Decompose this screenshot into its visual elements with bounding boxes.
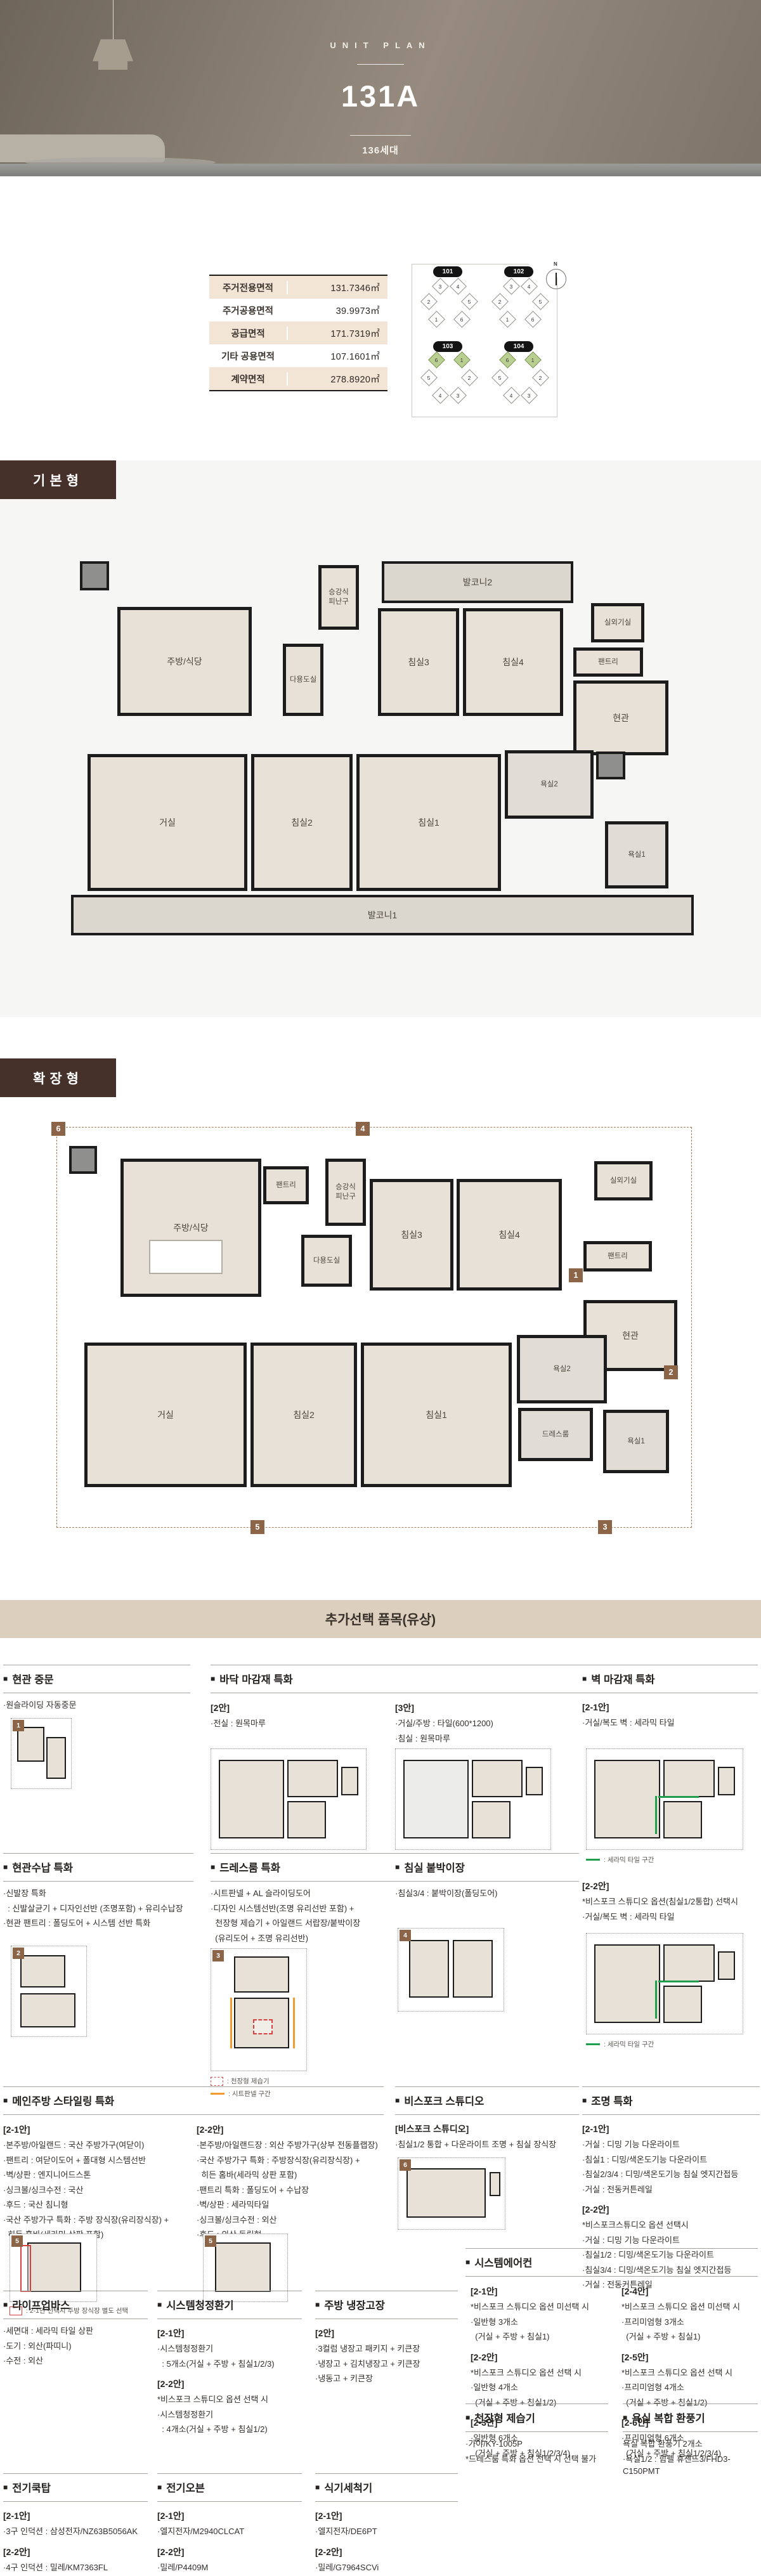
- option-lines: [2안]·3컬럼 냉장고 패키지 + 키큰장·냉장고 + 김치냉장고 + 키큰장…: [315, 2327, 458, 2385]
- building-label: 104: [504, 341, 533, 352]
- option-card-cooktop: ■전기쿡탑 [2-1안]·3구 인덕션 : 삼성전자/NZ63B5056AK[2…: [3, 2473, 148, 2576]
- thumb-block: [490, 2172, 500, 2196]
- card-title-row: ■조명 특화: [582, 2086, 760, 2115]
- option-line: ·디자인 시스템선반(조명 유리선반 포함) +: [211, 1903, 398, 1915]
- option-line: *비스포크 스튜디오 옵션(침실1/2통합) 선택시: [582, 1896, 758, 1908]
- card-title: 전기쿡탑: [12, 2480, 51, 2495]
- card-title: 벽 마감재 특화: [591, 1671, 654, 1686]
- card-title: 천장형 제습기: [474, 2410, 535, 2425]
- option-line: ·시트판넬 + AL 슬라이딩도어: [211, 1887, 398, 1900]
- square-bullet-icon: ■: [211, 1674, 215, 1683]
- option-lines: [2-1안]·거실/복도 벽 : 세라믹 타일: [582, 1701, 758, 1729]
- card-title: 조명 특화: [591, 2093, 632, 2108]
- area-label: 기타 공용면적: [209, 349, 288, 363]
- thumb-block: [594, 1760, 660, 1838]
- unit-type-title: 131A: [0, 79, 761, 114]
- thumb-block: [409, 1940, 449, 1998]
- square-bullet-icon: ■: [3, 1674, 8, 1683]
- unit-diamond-highlighted: 6: [499, 351, 516, 368]
- option-line: ·냉동고 + 키큰장: [315, 2372, 458, 2385]
- legend: : 천장형 제습기: [211, 2076, 270, 2086]
- square-bullet-icon: ■: [3, 2096, 8, 2105]
- unit-diamond: 6: [524, 311, 542, 328]
- thumb-block: [472, 1760, 523, 1797]
- thumb-block: [234, 1956, 289, 1993]
- option-line: ·원슬라이딩 자동중문: [3, 1699, 190, 1712]
- room-kitchen: 주방/식당: [120, 1159, 261, 1297]
- card-title: 전기오븐: [166, 2480, 205, 2495]
- option-line: ·수전 : 외산: [3, 2355, 148, 2367]
- shaft: [596, 751, 625, 779]
- card-title-row: ■비스포크 스튜디오: [395, 2086, 579, 2115]
- area-value: 39.9973㎡: [288, 304, 387, 317]
- table-row: 주거전용면적 131.7346㎡: [209, 276, 387, 299]
- sheet-panel-highlight: [293, 1998, 295, 2049]
- square-bullet-icon: ■: [465, 2413, 470, 2422]
- legend-text: : 천장형 제습기: [227, 2076, 270, 2086]
- option-line: 천장형 제습기 + 아일랜드 서랍장/붙박이장: [211, 1917, 398, 1930]
- card-title: 욕실 복합 환풍기: [632, 2410, 705, 2425]
- area-label: 계약면적: [209, 372, 288, 386]
- compass-needle: [556, 273, 557, 285]
- plan-marker: 5: [11, 2235, 23, 2247]
- plan-marker: 2: [664, 1365, 678, 1379]
- option-card-lifeup-bath: ■라이프업바스 ·세면대 : 세라믹 타일 상판·도기 : 외산(파띠니)·수전…: [3, 2291, 148, 2370]
- unit-diamond: 6: [453, 311, 471, 328]
- thumb-block: [526, 1767, 543, 1795]
- building-label: 102: [504, 266, 533, 277]
- square-bullet-icon: ■: [315, 2300, 320, 2309]
- option-lines: [3안]·거실/주방 : 타일(600*1200)·침실 : 원목마루: [395, 1701, 576, 1745]
- option-line: ·시스템청정환기: [157, 2409, 302, 2421]
- unit-diamond: 4: [521, 278, 538, 295]
- thumb-block: [20, 1993, 75, 2027]
- option-line: *비스포크 스튜디오 옵션 선택 시: [157, 2393, 302, 2406]
- option-line: [비스포크 스튜디오]: [395, 2123, 579, 2136]
- card-title-row: ■메인주방 스타일링 특화: [3, 2086, 384, 2115]
- card-title-row: ■전기오븐: [157, 2473, 302, 2502]
- option-lines: ·시트판넬 + AL 슬라이딩도어·디자인 시스템선반(조명 유리선반 포함) …: [211, 1887, 398, 1944]
- option-line: (거실 + 주방 + 침실1): [471, 2331, 609, 2343]
- option-line: ·현관 팬트리 : 폴딩도어 + 시스템 선반 특화: [3, 1917, 193, 1930]
- area-table: 주거전용면적 131.7346㎡ 주거공용면적 39.9973㎡ 공급면적 17…: [209, 275, 387, 391]
- option-lines: [2안]·전실 : 원목마루: [211, 1701, 391, 1730]
- square-bullet-icon: ■: [3, 2483, 8, 2492]
- card-title-row: ■식기세척기: [315, 2473, 458, 2502]
- hero-banner: UNIT PLAN 131A 136세대: [0, 0, 761, 176]
- table-row: 기타 공용면적 107.1601㎡: [209, 344, 387, 367]
- green-line-icon: [586, 2043, 600, 2045]
- option-line: [2-1안]: [3, 2509, 148, 2523]
- card-title-row: ■천장형 제습기: [465, 2404, 608, 2432]
- thumb-block: [718, 1767, 735, 1795]
- option-line: ·국산 주방가구 특화 : 주방장식장(유리장식장) +: [197, 2154, 382, 2167]
- option-line: ·엘지전자/M2940CLCAT: [157, 2525, 302, 2538]
- plan-marker: 5: [205, 2235, 216, 2247]
- option-line: ·싱크볼/싱크수전 : 국산: [3, 2184, 188, 2197]
- table-row: 공급면적 171.7319㎡: [209, 322, 387, 344]
- option-line: [2안]: [315, 2327, 458, 2340]
- option-line: [2-1안]: [315, 2509, 458, 2523]
- card-title: 비스포크 스튜디오: [404, 2093, 484, 2108]
- option-lines: ·세면대 : 세라믹 타일 상판·도기 : 외산(파띠니)·수전 : 외산: [3, 2325, 148, 2367]
- ceramic-tile-highlight: [655, 1981, 657, 2019]
- building-103: 103 6 1 5 2 4 3: [417, 341, 480, 412]
- unit-diamond-highlighted: 1: [453, 351, 471, 368]
- ceramic-tile-highlight: [655, 1796, 657, 1834]
- thumb-block: [472, 1801, 511, 1838]
- option-line: [2-2안]: [3, 2546, 148, 2559]
- option-line: 욕실 복합 환풍기 2개소: [623, 2438, 758, 2450]
- option-lines: ·침실3/4 : 붙박이장(폴딩도어): [395, 1887, 579, 1900]
- floor-plan-basic: 주방/식당 승강식 피난구 다용도실 발코니2 침실3 침실4 실외기실 팬트리…: [57, 549, 729, 945]
- card-title-row: ■현관 중문: [3, 1665, 190, 1693]
- option-lines: [2-2안]·본주방/아일랜드장 : 외산 주방가구(상부 전동플랩장)·국산 …: [197, 2123, 382, 2241]
- option-line: ·거실 : 전동커튼레일: [582, 2183, 760, 2196]
- room-ac: 실외기실: [594, 1161, 653, 1200]
- option-line: : 신발살균기 + 디자인선반 (조명포함) + 유리수납장: [3, 1903, 193, 1915]
- card-title-row: ■라이프업바스: [3, 2291, 148, 2319]
- option-card-entry-door: ■현관 중문 ·원슬라이딩 자동중문 1: [3, 1665, 190, 1714]
- option-lines: [2-2안]*비스포크 스튜디오 옵션(침실1/2통합) 선택시·거실/복도 벽…: [582, 1880, 758, 1923]
- room-ac: 실외기실: [591, 603, 644, 642]
- option-plan-thumb: [586, 1933, 743, 2034]
- option-line: [3안]: [395, 1701, 576, 1715]
- option-lines: [2-1안]·시스템청정환기 : 5개소(거실 + 주방 + 침실1/2/3)[…: [157, 2327, 302, 2436]
- option-card-dressroom: ■드레스룸 특화 ·시트판넬 + AL 슬라이딩도어·디자인 시스템선반(조명 …: [211, 1853, 398, 1947]
- thumb-block: [17, 1727, 44, 1762]
- pendant-lamp-cord-image: [113, 0, 114, 41]
- thumb-block: [663, 1986, 703, 2022]
- option-line: [2-2안]: [157, 2378, 302, 2391]
- option-card-ventilation: ■시스템청정환기 [2-1안]·시스템청정환기 : 5개소(거실 + 주방 + …: [157, 2291, 302, 2438]
- hero-divider-2: [350, 135, 411, 136]
- room-pantry-kitchen: 팬트리: [263, 1166, 309, 1204]
- option-subcol: [2안]·전실 : 원목마루: [211, 1694, 391, 1733]
- option-card-bath-fan: ■욕실 복합 환풍기 욕실 복합 환풍기 2개소·욕실1/2 : 힘펠 휴젠뜨3…: [623, 2404, 758, 2480]
- area-label: 주거공용면적: [209, 304, 288, 317]
- option-plan-thumb: 6: [398, 2157, 505, 2230]
- option-line: ·시스템청정환기: [157, 2343, 302, 2355]
- legend: : 세라믹 타일 구간: [586, 2039, 654, 2049]
- thumb-block: [453, 1940, 493, 1998]
- option-line: ·4구 인덕션 : 밀레/KM7363FL: [3, 2561, 148, 2574]
- green-line-icon: [586, 1859, 600, 1861]
- red-dash-box-icon: [211, 2077, 223, 2086]
- option-line: ·전실 : 원목마루: [211, 1717, 391, 1730]
- card-title-row: ■벽 마감재 특화: [582, 1665, 758, 1693]
- room-bed3: 침실3: [378, 608, 459, 716]
- unit-diamond: 2: [420, 293, 438, 310]
- room-bath2: 욕실2: [517, 1335, 607, 1403]
- option-line: ·일반형 4개소: [471, 2381, 609, 2394]
- option-line: [2-5안]: [621, 2351, 758, 2364]
- option-line: ·거실/복도 벽 : 세라믹 타일: [582, 1717, 758, 1729]
- thumb-block: [663, 1760, 715, 1797]
- thumb-block: [663, 1944, 715, 1981]
- option-lines: 욕실 복합 환풍기 2개소·욕실1/2 : 힘펠 휴젠뜨3/FHD3-C150P…: [623, 2438, 758, 2478]
- kitchen-island: [149, 1240, 223, 1274]
- option-line: ·프리미엄형 4개소: [621, 2381, 758, 2394]
- option-lines: ·가야/KY-1005P*드레스룸 특화 옵션 선택 시 선택 불가: [465, 2438, 608, 2465]
- square-bullet-icon: ■: [582, 2096, 587, 2105]
- thumb-block: [20, 1955, 65, 1987]
- option-line: ·침실1/2 통합 + 다운라이트 조명 + 침실 장식장: [395, 2138, 579, 2151]
- option-line: (거실 + 주방 + 침실1): [621, 2331, 758, 2343]
- room-bed1: 침실1: [356, 754, 501, 891]
- plan-marker: 6: [400, 2159, 411, 2171]
- option-card-oven: ■전기오븐 [2-1안]·엘지전자/M2940CLCAT[2-2안]·밀레/P4…: [157, 2473, 302, 2576]
- option-line: [2-2안]: [471, 2351, 609, 2364]
- option-plan-thumb: 4: [398, 1928, 504, 2012]
- room-kitchen: 주방/식당: [117, 607, 252, 716]
- card-title: 라이프업바스: [12, 2297, 70, 2312]
- plan-marker: 4: [356, 1122, 370, 1136]
- compass-icon: N: [546, 269, 566, 289]
- plan-marker: 1: [13, 1720, 24, 1731]
- options-title-band: 추가선택 품목(유상): [0, 1600, 761, 1638]
- unit-diamond: 4: [432, 387, 449, 404]
- basic-plan-label: 기본형: [0, 460, 116, 499]
- option-line: ·침실 : 원목마루: [395, 1733, 576, 1745]
- room-utility: 다용도실: [301, 1235, 352, 1287]
- option-line: [2-1안]: [471, 2285, 609, 2298]
- building-label: 103: [433, 341, 462, 352]
- thumb-block: [219, 1760, 283, 1838]
- room-balcony2: 발코니2: [382, 561, 573, 603]
- room-bed2: 침실2: [251, 754, 353, 891]
- card-title-row: ■시스템에어컨: [465, 2248, 758, 2277]
- thumb-block: [27, 2242, 81, 2292]
- room-utility: 다용도실: [283, 644, 323, 716]
- building-label: 101: [433, 266, 462, 277]
- floor-plan-extended: 6 4 1 2 5 3 주방/식당 팬트리 승강식 피난구 다용도실 침실3 침…: [48, 1119, 736, 1541]
- ceramic-tile-highlight: [658, 1981, 699, 1982]
- option-line: ·거실/주방 : 타일(600*1200): [395, 1717, 576, 1730]
- ceramic-tile-highlight: [658, 1796, 699, 1798]
- shaft: [69, 1146, 97, 1174]
- option-line: ·본주방/아일랜드장 : 외산 주방가구(상부 전동플랩장): [197, 2139, 382, 2152]
- square-bullet-icon: ■: [395, 2096, 400, 2105]
- area-value: 278.8920㎡: [288, 372, 387, 386]
- option-lines: ·원슬라이딩 자동중문: [3, 1699, 190, 1712]
- unit-diamond: 5: [532, 293, 549, 310]
- plan-marker: 1: [569, 1268, 583, 1282]
- option-line: [2-2안]: [582, 2203, 760, 2216]
- hero-divider: [357, 64, 404, 65]
- option-card-dishwasher: ■식기세척기 [2-1안]·엘지전자/DE6PT[2-2안]·밀레/G7964S…: [315, 2473, 458, 2576]
- card-title: 주방 냉장고장: [324, 2297, 385, 2312]
- option-line: ·벽/상판 : 엔지니어드스톤: [3, 2169, 188, 2182]
- unit-diamond: 1: [499, 311, 516, 328]
- option-lines: [2-1안]·엘지전자/DE6PT[2-2안]·밀레/G7964SCVi: [315, 2509, 458, 2573]
- option-line: *드레스룸 특화 옵션 선택 시 선택 불가: [465, 2453, 608, 2466]
- square-bullet-icon: ■: [3, 1863, 8, 1871]
- option-card-dehumidifier: ■천장형 제습기 ·가야/KY-1005P*드레스룸 특화 옵션 선택 시 선택…: [465, 2404, 608, 2468]
- room-living: 거실: [84, 1343, 247, 1487]
- option-line: ·3구 인덕션 : 삼성전자/NZ63B5056AK: [3, 2525, 148, 2538]
- unit-diamond: 2: [461, 369, 478, 386]
- room-bed4: 침실4: [457, 1179, 562, 1291]
- card-title: 현관 중문: [12, 1671, 53, 1686]
- thumb-block: [287, 1801, 326, 1838]
- thumb-block: [718, 1951, 735, 1979]
- option-card-wall-finish-2: [2-2안]*비스포크 스튜디오 옵션(침실1/2통합) 선택시·거실/복도 벽…: [582, 1872, 758, 1925]
- plan-marker: 3: [212, 1950, 224, 1961]
- room-pantry-entry: 팬트리: [583, 1241, 652, 1272]
- square-bullet-icon: ■: [211, 1863, 215, 1871]
- option-plan-thumb: 2: [11, 1946, 87, 2037]
- option-line: ·침실3/4 : 붙박이장(폴딩도어): [395, 1887, 579, 1900]
- option-lines: [2-1안]·3구 인덕션 : 삼성전자/NZ63B5056AK[2-2안]·4…: [3, 2509, 148, 2573]
- square-bullet-icon: ■: [623, 2413, 627, 2422]
- option-line: ·팬트리 특화 : 폴딩도어 + 수납장: [197, 2184, 382, 2197]
- option-line: ·엘지전자/DE6PT: [315, 2525, 458, 2538]
- option-line: ·세면대 : 세라믹 타일 상판: [3, 2325, 148, 2338]
- option-subcol: [2-2안]·본주방/아일랜드장 : 외산 주방가구(상부 전동플랩장)·국산 …: [197, 2116, 382, 2244]
- square-bullet-icon: ■: [582, 1674, 587, 1683]
- area-value: 131.7346㎡: [288, 281, 387, 294]
- area-label: 주거전용면적: [209, 281, 288, 294]
- area-value: 171.7319㎡: [288, 327, 387, 340]
- compass-north-label: N: [554, 261, 557, 267]
- option-line: [2-1안]: [582, 1701, 758, 1714]
- option-line: *비스포크 스튜디오 옵션 미선택 시: [471, 2301, 609, 2313]
- dehumidifier-highlight: [253, 2019, 273, 2034]
- square-bullet-icon: ■: [465, 2258, 470, 2267]
- sheet-panel-highlight: [230, 1998, 232, 2049]
- unit-diamond: 2: [532, 369, 549, 386]
- square-bullet-icon: ■: [3, 2300, 8, 2309]
- unit-diamond: 5: [491, 369, 509, 386]
- table-row: 계약면적 278.8920㎡: [209, 367, 387, 390]
- thumb-block: [46, 1737, 67, 1779]
- option-line: ·침실1 : 디밍/색온도기능 다운라이트: [582, 2154, 760, 2166]
- room-dress: 드레스룸: [518, 1408, 593, 1461]
- option-line: ·침실2/3/4 : 디밍/색온도기능 침실 엣지간접등: [582, 2168, 760, 2181]
- option-line: [2-2안]: [315, 2546, 458, 2559]
- option-plan-thumb: [586, 1748, 743, 1850]
- option-card-floor-finish: ■바닥 마감재 특화 [2안]·전실 : 원목마루 [3안]·거실/주방 : 타…: [211, 1665, 593, 1693]
- thumb-block: [594, 1944, 660, 2022]
- option-card-system-aircon: ■시스템에어컨 [2-1안]*비스포크 스튜디오 옵션 미선택 시·일반형 3개…: [465, 2248, 758, 2277]
- card-title-row: ■주방 냉장고장: [315, 2291, 458, 2319]
- card-title-row: ■시스템청정환기: [157, 2291, 302, 2319]
- room-entry: 현관: [573, 680, 668, 755]
- card-title: 침실 붙박이장: [404, 1859, 465, 1875]
- option-card-entry-storage: ■현관수납 특화 ·신발장 특화 : 신발살균기 + 디자인선반 (조명포함) …: [3, 1853, 193, 1932]
- room-bath1: 욕실1: [603, 1410, 669, 1473]
- option-line: ·국산 주방가구 특화 : 주방 장식장(유리장식장) +: [3, 2214, 188, 2227]
- option-line: [2-1안]: [582, 2123, 760, 2136]
- legend-text: : 세라믹 타일 구간: [604, 2039, 654, 2049]
- option-lines: [비스포크 스튜디오]·침실1/2 통합 + 다운라이트 조명 + 침실 장식장: [395, 2123, 579, 2151]
- card-title: 시스템에어컨: [474, 2254, 532, 2270]
- thumb-block: [341, 1767, 358, 1795]
- option-line: 히든 홈바(세라믹 상판 포함): [197, 2169, 382, 2182]
- unit-diamond: 2: [491, 293, 509, 310]
- building-104: 104 6 1 5 2 4 3: [488, 341, 551, 412]
- square-bullet-icon: ■: [315, 2483, 320, 2492]
- unit-diamond: 3: [503, 278, 520, 295]
- plan-marker: 5: [250, 1520, 264, 1534]
- room-bed4: 침실4: [463, 608, 563, 716]
- option-subcol: [3안]·거실/주방 : 타일(600*1200)·침실 : 원목마루: [395, 1694, 576, 1747]
- option-line: ·거실/복도 벽 : 세라믹 타일: [582, 1911, 758, 1923]
- option-line: *비스포크 스튜디오 옵션 선택 시: [621, 2367, 758, 2379]
- option-line: [2-2안]: [157, 2546, 302, 2559]
- card-title: 바닥 마감재 특화: [219, 1671, 292, 1686]
- option-line: ·벽/상판 : 세라믹타일: [197, 2199, 382, 2211]
- shaft: [80, 561, 109, 590]
- option-line: ·밀레/G7964SCVi: [315, 2561, 458, 2574]
- room-living: 거실: [88, 754, 247, 891]
- room-bed3: 침실3: [370, 1179, 453, 1291]
- card-title-row: ■드레스룸 특화: [211, 1853, 398, 1882]
- option-line: ·밀레/P4409M: [157, 2561, 302, 2574]
- option-line: ·본주방/아일랜드 : 국산 주방가구(여닫이): [3, 2139, 188, 2152]
- legend: : 세라믹 타일 구간: [586, 1855, 654, 1864]
- card-title-row: ■침실 붙박이장: [395, 1853, 579, 1882]
- thumb-block: [215, 2242, 270, 2292]
- option-line: [2-2안]: [582, 1880, 758, 1893]
- table-row: 주거공용면적 39.9973㎡: [209, 299, 387, 322]
- option-line: ·싱크볼/싱크수전 : 외산: [197, 2214, 382, 2227]
- card-title-row: ■바닥 마감재 특화: [211, 1665, 593, 1693]
- room-refuge: 승강식 피난구: [325, 1159, 366, 1226]
- building-102: 102 3 4 2 5 1 6: [488, 266, 551, 337]
- square-bullet-icon: ■: [157, 2483, 162, 2492]
- square-bullet-icon: ■: [395, 1863, 400, 1871]
- card-title: 식기세척기: [324, 2480, 372, 2495]
- unit-diamond: 3: [432, 278, 449, 295]
- option-line: ·후드 : 국산 침니형: [3, 2199, 188, 2211]
- room-bed2: 침실2: [250, 1343, 357, 1487]
- option-line: [2-1안]: [3, 2123, 188, 2137]
- room-bed1: 침실1: [361, 1343, 512, 1487]
- unit-diamond: 1: [428, 311, 445, 328]
- option-line: : 5개소(거실 + 주방 + 침실1/2/3): [157, 2358, 302, 2371]
- option-card-builtin-closet: ■침실 붙박이장 ·침실3/4 : 붙박이장(폴딩도어) 4: [395, 1853, 579, 1903]
- unit-diamond-highlighted: 1: [524, 351, 542, 368]
- option-card-wall-finish: ■벽 마감재 특화 [2-1안]·거실/복도 벽 : 세라믹 타일 : 세라믹 …: [582, 1665, 758, 1732]
- thumb-block: [663, 1801, 703, 1838]
- option-line: [2-1안]: [157, 2327, 302, 2340]
- unit-diamond: 3: [450, 387, 467, 404]
- card-title-row: ■욕실 복합 환풍기: [623, 2404, 758, 2432]
- card-title: 시스템청정환기: [166, 2297, 233, 2312]
- option-card-fridge-cabinet: ■주방 냉장고장 [2안]·3컬럼 냉장고 패키지 + 키큰장·냉장고 + 김치…: [315, 2291, 458, 2388]
- card-title-row: ■전기쿡탑: [3, 2473, 148, 2502]
- plan-marker: 4: [400, 1930, 411, 1941]
- option-plan-thumb: 3: [211, 1948, 307, 2071]
- option-plan-thumb: [395, 1748, 551, 1850]
- option-subcol: [2-1안]·본주방/아일랜드 : 국산 주방가구(여닫이)·팬트리 : 여닫이…: [3, 2116, 188, 2244]
- plan-marker: 3: [598, 1520, 612, 1534]
- option-line: [2-1안]: [157, 2509, 302, 2523]
- unit-diamond: 4: [503, 387, 520, 404]
- option-lines: ·신발장 특화 : 신발살균기 + 디자인선반 (조명포함) + 유리수납장·현…: [3, 1887, 193, 1930]
- area-label: 공급면적: [209, 327, 288, 340]
- option-line: ·가야/KY-1005P: [465, 2438, 608, 2450]
- option-line: ·일반형 3개소: [471, 2316, 609, 2329]
- hero-eyebrow: UNIT PLAN: [0, 41, 761, 50]
- option-line: ·욕실1/2 : 힘펠 휴젠뜨3/FHD3-C150PMT: [623, 2453, 758, 2478]
- room-pantry: 팬트리: [573, 647, 643, 677]
- option-card-bespoke-studio: ■비스포크 스튜디오 [비스포크 스튜디오]·침실1/2 통합 + 다운라이트 …: [395, 2086, 579, 2154]
- option-line: ·팬트리 : 여닫이도어 + 폴대형 시스템선반: [3, 2154, 188, 2167]
- option-line: ·3컬럼 냉장고 패키지 + 키큰장: [315, 2343, 458, 2355]
